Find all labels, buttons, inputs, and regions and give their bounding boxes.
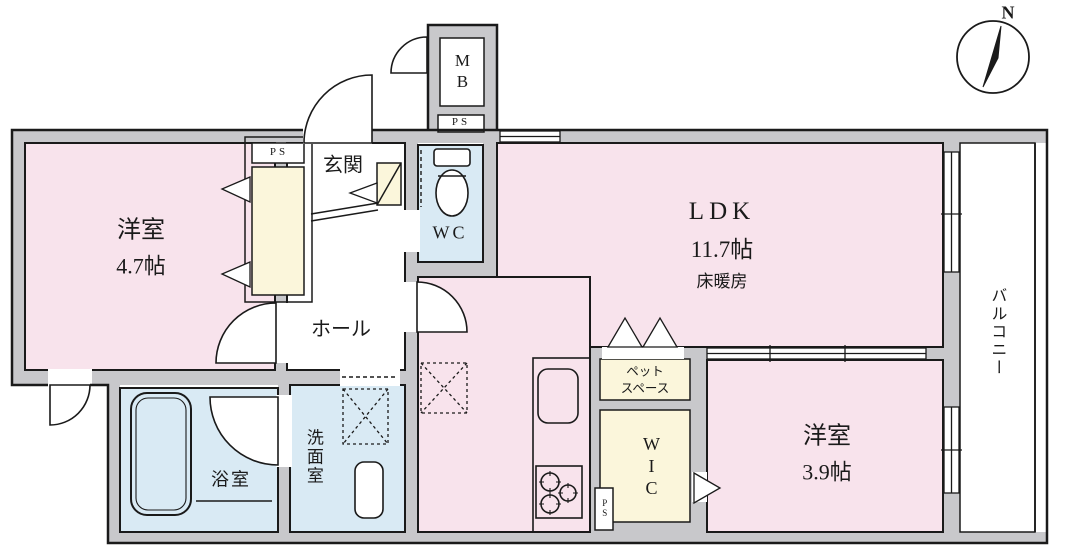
- pipe-space-label-2: PS: [452, 117, 470, 129]
- western-room-2-label: 洋室: [803, 424, 851, 449]
- closet: [252, 167, 304, 295]
- ldk-floor-heating: 床暖房: [697, 273, 748, 291]
- ldk-size: 11.7帖: [691, 238, 753, 262]
- ldk-label: LDK: [689, 199, 755, 225]
- north-label: N: [1002, 4, 1015, 23]
- pet-space-label-line1: ペット: [626, 365, 664, 378]
- pipe-space-label-3: PS: [599, 498, 608, 518]
- western-room-1-size: 4.7帖: [116, 254, 166, 277]
- meter-box-label: MB: [453, 51, 471, 93]
- hall-label: ホール: [311, 320, 371, 341]
- toilet-label: WC: [433, 224, 468, 243]
- pipe-space-label-1: PS: [270, 147, 288, 159]
- pet-space-label-line2: スペース: [621, 382, 670, 395]
- washbasin: [355, 462, 383, 518]
- entrance-label: 玄関: [323, 156, 363, 177]
- walk-in-closet-label: WIC: [642, 434, 661, 500]
- floor-plan: N 洋室 4.7帖 玄関 ホール WC MB PS PS PS LDK 11.7…: [0, 0, 1068, 554]
- rooms: [25, 143, 1035, 532]
- western-room-1-label: 洋室: [117, 218, 165, 243]
- western-room-2-size: 3.9帖: [802, 460, 852, 483]
- toilet-fixture: [434, 149, 470, 216]
- bathroom-label: 浴室: [211, 471, 251, 490]
- compass: [957, 21, 1029, 93]
- balcony-label: バルコニー: [988, 287, 1005, 377]
- washroom-label: 洗面室: [304, 429, 322, 486]
